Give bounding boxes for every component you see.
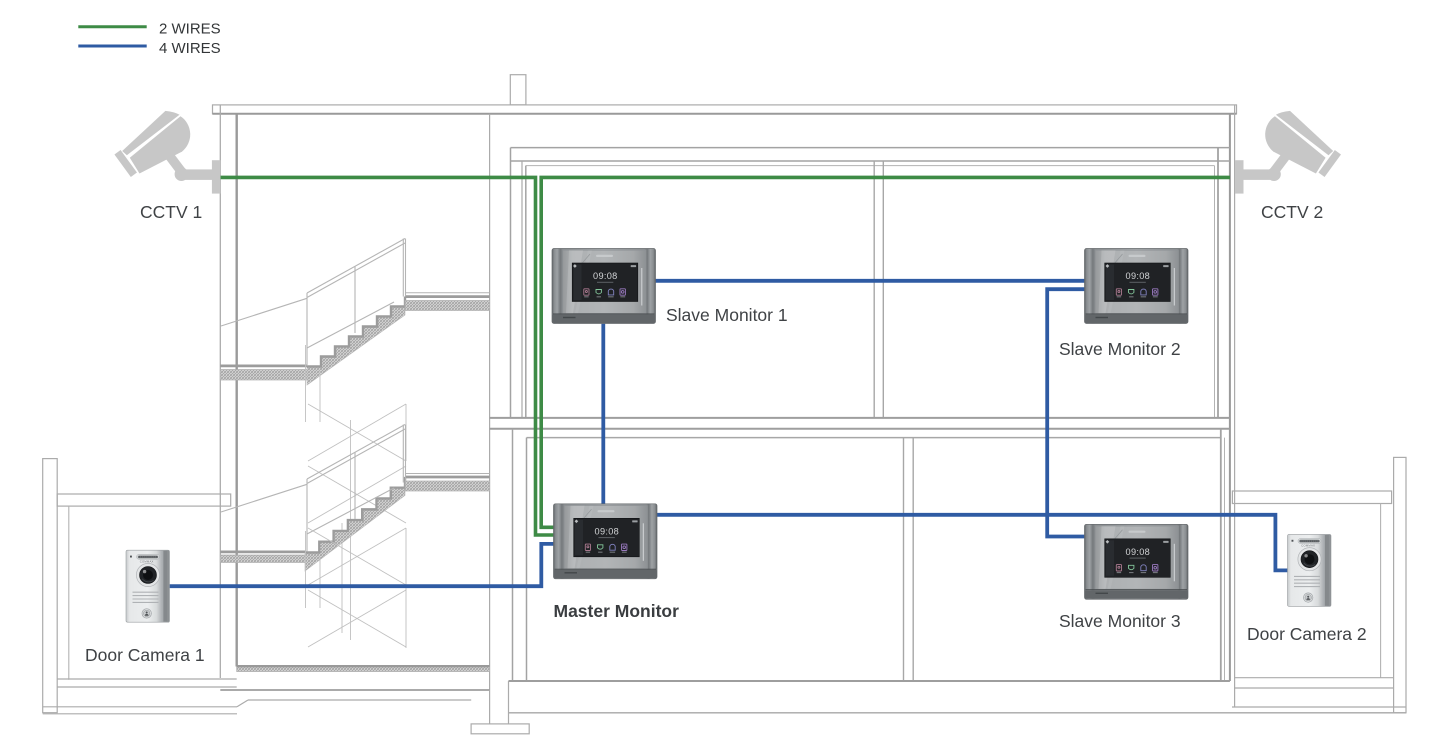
svg-text:4 WIRES: 4 WIRES [159, 40, 221, 57]
svg-text:Slave Monitor 2: Slave Monitor 2 [1059, 339, 1181, 359]
svg-text:Door Camera 2: Door Camera 2 [1247, 624, 1367, 644]
svg-text:Master Monitor: Master Monitor [554, 601, 680, 621]
svg-text:CCTV 2: CCTV 2 [1261, 202, 1323, 222]
svg-text:Slave Monitor 1: Slave Monitor 1 [666, 305, 788, 325]
svg-text:Slave Monitor 3: Slave Monitor 3 [1059, 611, 1181, 631]
svg-text:2 WIRES: 2 WIRES [159, 21, 221, 38]
svg-text:CCTV 1: CCTV 1 [140, 202, 202, 222]
svg-text:Door Camera 1: Door Camera 1 [85, 645, 205, 665]
